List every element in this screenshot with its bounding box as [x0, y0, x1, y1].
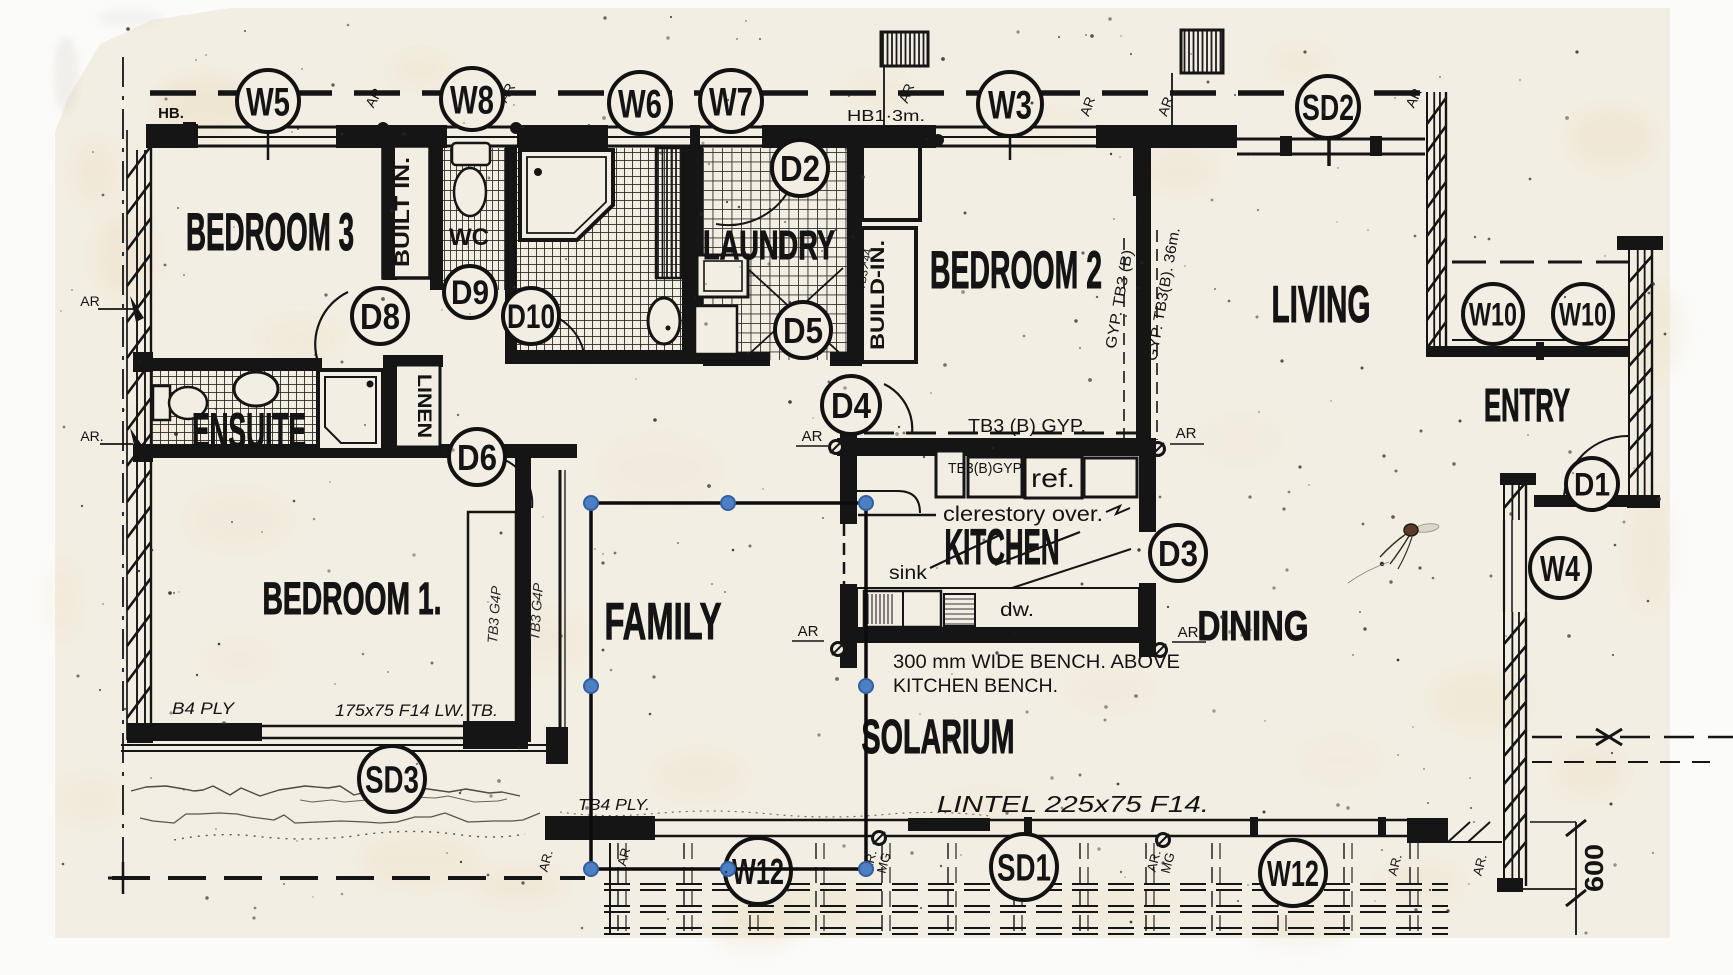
svg-text:ENSUITE: ENSUITE: [192, 403, 306, 459]
svg-text:W10: W10: [1559, 297, 1607, 333]
svg-text:AR.: AR.: [80, 428, 103, 444]
svg-text:HB1·3m.: HB1·3m.: [847, 108, 925, 125]
svg-text:W12: W12: [732, 851, 784, 892]
svg-text:KITCHEN BENCH.: KITCHEN BENCH.: [893, 675, 1058, 697]
svg-text:BEDROOM 1.: BEDROOM 1.: [263, 573, 442, 624]
svg-text:sink: sink: [889, 563, 928, 584]
svg-text:TB4 PLY.: TB4 PLY.: [578, 797, 650, 814]
svg-text:LAUNDRY: LAUNDRY: [703, 222, 835, 268]
svg-text:175x75 F14 LW. TB.: 175x75 F14 LW. TB.: [335, 701, 498, 720]
svg-text:SD1: SD1: [997, 848, 1051, 890]
svg-text:W4: W4: [1540, 548, 1580, 589]
svg-text:SD3: SD3: [365, 760, 419, 802]
svg-text:dw.: dw.: [1000, 600, 1034, 621]
svg-text:W8: W8: [450, 78, 494, 122]
svg-text:ref.: ref.: [1031, 463, 1075, 493]
svg-text:BUILT IN.: BUILT IN.: [392, 157, 414, 267]
svg-text:D5: D5: [783, 310, 823, 351]
svg-text:D4: D4: [831, 385, 871, 426]
svg-text:W5: W5: [246, 80, 290, 124]
svg-text:D6: D6: [457, 437, 497, 478]
svg-text:D9: D9: [451, 274, 489, 312]
svg-text:TB3 (B) GYP.: TB3 (B) GYP.: [968, 416, 1086, 436]
svg-text:W12: W12: [1267, 853, 1319, 894]
svg-text:AR: AR: [1176, 425, 1197, 442]
svg-text:D10: D10: [507, 298, 555, 336]
svg-text:LINTEL 225x75 F14.: LINTEL 225x75 F14.: [937, 791, 1209, 817]
svg-text:TB3(B)GYP: TB3(B)GYP: [948, 460, 1022, 477]
svg-text:BEDROOM 2: BEDROOM 2: [930, 241, 1102, 300]
svg-text:AR: AR: [1178, 624, 1199, 641]
svg-text:AR: AR: [798, 623, 819, 640]
svg-text:FAMILY: FAMILY: [605, 593, 722, 651]
svg-text:AR: AR: [80, 293, 99, 309]
svg-text:B4 PLY: B4 PLY: [172, 699, 236, 718]
svg-text:SOLARIUM: SOLARIUM: [862, 711, 1015, 764]
svg-text:LINEN: LINEN: [413, 374, 434, 438]
svg-text:300 mm WIDE BENCH. ABOVE: 300 mm WIDE BENCH. ABOVE: [893, 651, 1180, 673]
svg-text:ENTRY: ENTRY: [1484, 379, 1570, 431]
svg-text:D3: D3: [1158, 533, 1198, 574]
svg-text:W3: W3: [988, 83, 1032, 127]
svg-text:HB.: HB.: [158, 105, 184, 122]
svg-text:W6: W6: [618, 82, 662, 126]
svg-text:LIVING: LIVING: [1272, 276, 1371, 334]
svg-text:W7: W7: [709, 80, 753, 124]
svg-text:D2: D2: [780, 148, 820, 189]
svg-text:600: 600: [1579, 844, 1609, 892]
svg-text:D1: D1: [1574, 467, 1610, 503]
svg-text:WC: WC: [449, 224, 489, 251]
svg-text:SD2: SD2: [1302, 87, 1354, 128]
svg-text:BEDROOM 3: BEDROOM 3: [186, 203, 354, 262]
svg-text:W10: W10: [1469, 297, 1517, 333]
svg-text:DINING: DINING: [1198, 602, 1309, 649]
svg-text:D8: D8: [360, 296, 400, 337]
svg-text:AR: AR: [802, 428, 823, 445]
